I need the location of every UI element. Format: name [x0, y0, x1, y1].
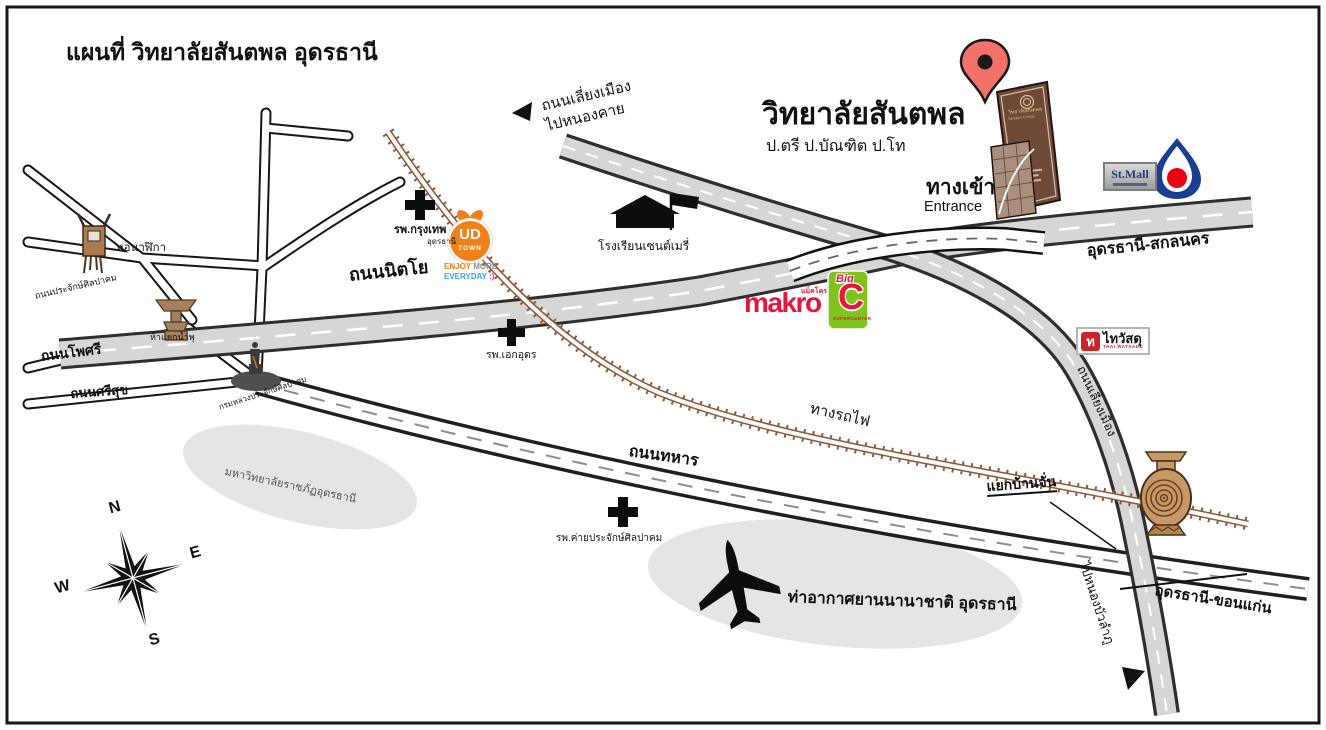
clock-tower-label: หอนาฬิกา [116, 242, 166, 255]
ud-town-tagline-2: EVERYDAY :) [444, 273, 494, 282]
college-degrees: ป.ตรี ป.บัณฑิต ป.โท [766, 138, 906, 156]
ud-town-enjoy: ENJOY [444, 262, 471, 271]
big-c-logo-sub: SUPERCENTER [833, 317, 871, 322]
camp-hospital-icon [608, 497, 638, 527]
page-title: แผนที่ วิทยาลัยสันตพล อุดรธานี [66, 40, 378, 65]
ud-town-more: MORE [473, 262, 497, 271]
st-mall-logo-bar [1113, 183, 1147, 186]
camp-hospital-label: รพ.ค่ายประจักษ์ศิลปาคม [556, 533, 662, 544]
st-mall-logo-text: St.Mall [1111, 167, 1149, 182]
college-name: วิทยาลัยสันตพล [762, 98, 965, 131]
map-canvas: แผนที่ วิทยาลัยสันตพล อุดรธานี ถนนเลี่ยง… [0, 0, 1326, 730]
makro-logo-thai: แม็คโคร [801, 288, 827, 296]
bangkok-hospital-label: รพ.กรุงเทพ [394, 224, 446, 236]
arrow-to-nongbua [1122, 667, 1145, 690]
school-icon [610, 193, 699, 230]
st-mary-school-label: โรงเรียนเซนต์เมรี่ [598, 240, 689, 253]
ud-town-abbr: UD [455, 227, 485, 244]
thai-watsadu-square: ท [1081, 332, 1100, 351]
ud-town-tagline-1: ENJOY MORE [444, 263, 497, 272]
thai-watsadu-en: THAI WATSADU [1103, 345, 1143, 350]
fountain-label: ห้าแยกน้ำพุ [150, 333, 195, 343]
entrance-label-th: ทางเข้า [926, 176, 995, 199]
bangkok-hospital-sub-label: อุดรธานี [427, 238, 456, 247]
compass-rose [80, 525, 186, 631]
map-drawing [0, 0, 1326, 730]
college-sign-monument [991, 82, 1060, 219]
aek-udon-hospital-label: รพ.เอกอุดร [486, 350, 537, 362]
arrow-to-nongkhai [512, 102, 532, 121]
entrance-label-en: Entrance [924, 200, 982, 216]
ud-town-smiley: :) [489, 272, 494, 281]
ud-town-word: TOWN [455, 245, 485, 252]
nittayo-road [60, 212, 1252, 354]
ud-town-everyday: EVERYDAY [444, 272, 487, 281]
ptt-icon [1153, 138, 1201, 199]
ban-chiang-pottery-icon [1141, 452, 1191, 535]
st-mall-logo: St.Mall [1103, 162, 1157, 191]
big-c-logo-c: C [838, 277, 864, 317]
map-border [7, 7, 1319, 723]
thai-watsadu-logo: ท ไทวัสดุ THAI WATSADU [1076, 327, 1150, 355]
